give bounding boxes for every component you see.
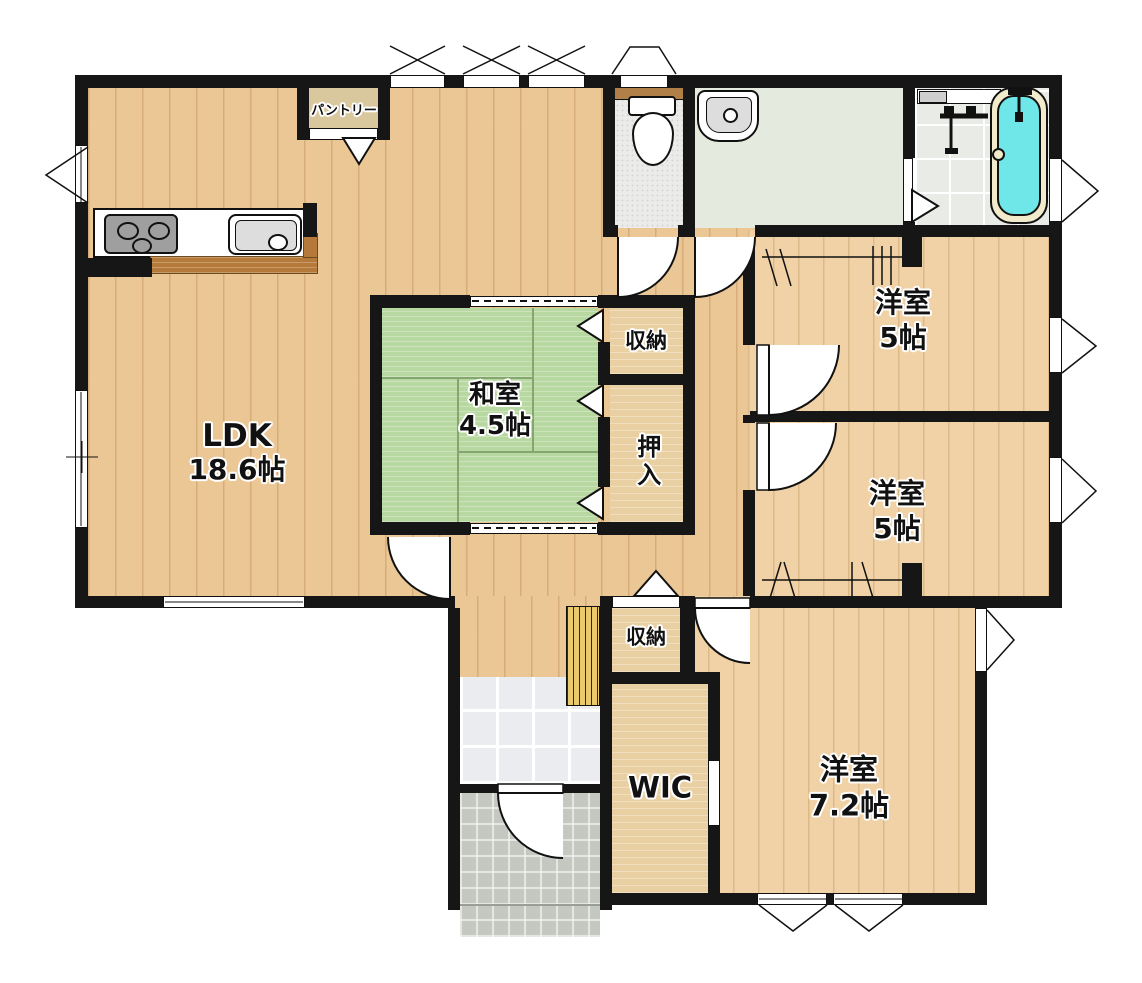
western-top-size: 5帖 [879,322,926,354]
wall [680,596,695,684]
wall [378,88,390,140]
wall [600,596,612,910]
washbasin-icon [697,90,759,142]
bath-shelf-box [919,91,947,103]
wall [750,596,1062,608]
window [163,596,305,608]
window [757,893,827,905]
window-marker [612,47,676,74]
sink-basin [235,220,297,251]
window-marker [1062,319,1096,373]
burner-icon [148,222,170,240]
wall [303,203,317,237]
wall [370,295,382,535]
window-marker [1062,459,1096,523]
wall [600,672,720,684]
wall [563,784,600,793]
window-bath [1049,158,1062,222]
burner-icon [117,222,139,240]
sliding-door-opening [470,296,598,307]
wall [297,88,309,140]
window-marker [528,46,585,74]
washbasin-drain [723,108,738,123]
tatami-line [532,308,534,453]
wall [603,225,618,237]
pantry-door-opening [309,128,378,140]
kitchen-sink-icon [228,214,302,255]
window [833,893,903,905]
kitchen-counter-wood [150,256,318,274]
wall [85,258,152,277]
wall [683,295,695,535]
wall [678,225,695,237]
wall [603,88,615,237]
wic-label: WIC [628,771,692,804]
wall [708,826,720,905]
wall [460,784,498,793]
wall [598,417,610,487]
window [75,390,88,528]
sliding-door-opening [470,523,598,534]
wic-door-opening [708,760,720,826]
wall [902,237,922,267]
wall [750,411,1062,422]
window [1049,317,1062,373]
porch-step-line [460,904,600,906]
western-7-2-floor [683,596,987,898]
storage-hall-label: 収納 [626,626,666,649]
window-marker [759,905,827,931]
wall [902,563,922,596]
front-door-leaf [498,784,563,793]
washitsu-size: 4.5帖 [459,412,531,442]
stove-icon [104,214,178,254]
tatami-line [457,451,598,453]
wall [598,295,695,308]
wall [743,490,755,596]
burner-icon [132,238,152,254]
bath-door-leaf [903,158,913,222]
window-marker [390,46,445,74]
window [390,75,445,88]
window [75,145,88,203]
storage-hall-opening [612,596,680,608]
western-7-2-label: 洋室 [820,753,878,786]
ldk-size: 18.6帖 [188,454,285,486]
floor-plan: パントリー LDK 18.6帖 和室 4.5帖 収納 押入 洋室 5帖 洋室 5… [0,0,1142,983]
washitsu-label: 和室 [469,381,521,411]
shoe-cabinet-icon [566,606,600,706]
storage-upper-label: 収納 [625,329,667,353]
wall [598,522,695,535]
window [528,75,585,88]
window-toilet [620,75,668,88]
wall [708,672,720,760]
tatami-line [457,377,459,522]
wall [755,225,1062,237]
western-mid-label: 洋室 [869,478,925,510]
window [463,75,520,88]
western-mid-size: 5帖 [873,513,920,545]
window-marker [463,46,520,74]
wall [743,237,755,345]
window-marker [835,905,903,931]
pantry-label: パントリー [311,105,377,120]
wall [598,374,695,385]
porch-tile [460,793,600,937]
wall [370,522,470,535]
wall [448,608,460,910]
sink-drain [268,234,288,251]
wall [370,295,470,308]
wall [683,88,695,237]
western-top-label: 洋室 [875,287,931,319]
window [1049,457,1062,523]
bathtub-drain [992,148,1005,161]
ldk-label: LDK [202,419,272,455]
window-marker [987,610,1014,670]
wall [903,88,915,158]
oshiire-label: 押入 [632,434,660,490]
western-7-2-size: 7.2帖 [809,789,889,822]
window [975,608,987,672]
window-marker [1062,160,1098,222]
